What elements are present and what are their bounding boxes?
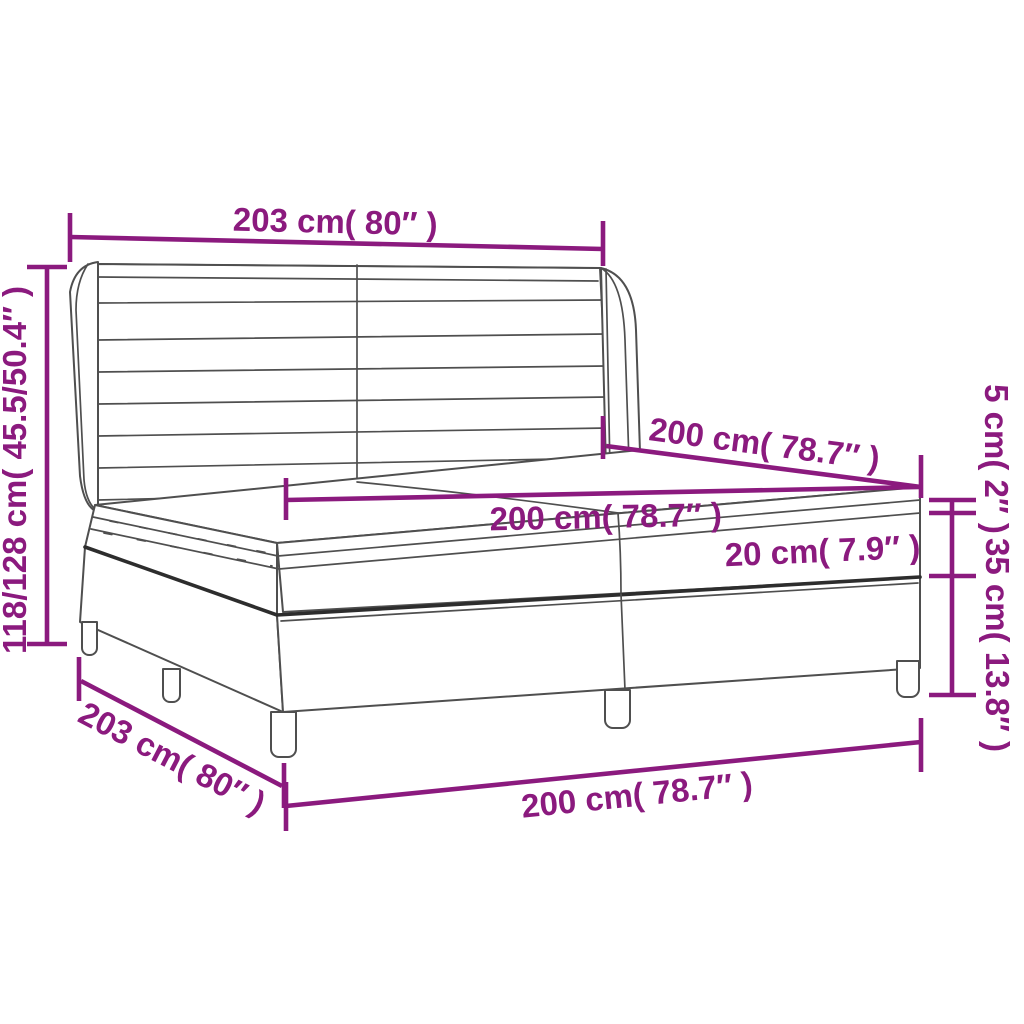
bed-height-label: 118/128 cm( 45.5/50.4″ ) [0, 286, 33, 654]
dimension-headboard-width: 203 cm( 80″ ) [70, 201, 603, 266]
mattress-length-label: 200 cm( 78.7″ ) [489, 496, 722, 538]
topper-thickness-label: 5 cm( 2″ ) [978, 384, 1015, 534]
bed-leg [82, 622, 97, 655]
dimension-right-stack: 5 cm( 2″ ) 35 cm( 13.8″ ) [929, 384, 1016, 752]
bed-leg [271, 712, 296, 757]
base-length-label: 200 cm( 78.7″ ) [519, 764, 754, 824]
headboard-width-label: 203 cm( 80″ ) [232, 201, 438, 243]
bed-diagram-canvas: 203 cm( 80″ ) 118/128 cm( 45.5/50.4″ ) 2… [0, 0, 1024, 1024]
bed-leg [605, 690, 630, 728]
bed-leg [897, 661, 919, 697]
base-width-label: 203 cm( 80″ ) [73, 694, 272, 821]
bed-leg [163, 669, 180, 702]
dimension-base-length: 200 cm( 78.7″ ) [286, 718, 921, 831]
base-height-label: 35 cm( 13.8″ ) [979, 538, 1016, 752]
bed-dimension-diagram: 203 cm( 80″ ) 118/128 cm( 45.5/50.4″ ) 2… [0, 0, 1024, 1024]
dimension-bed-height: 118/128 cm( 45.5/50.4″ ) [0, 267, 67, 654]
